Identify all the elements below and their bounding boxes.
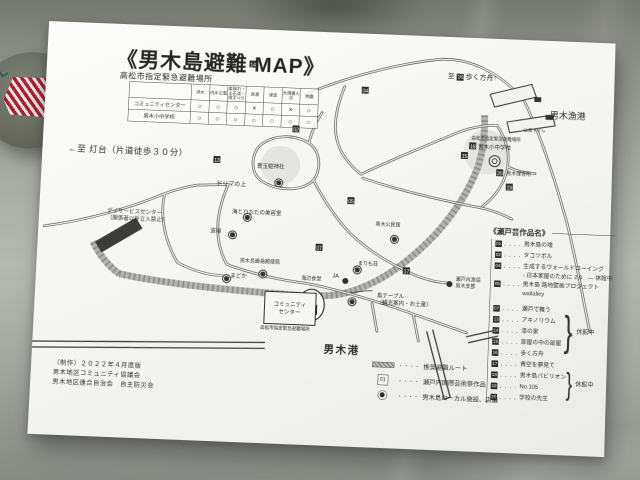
art-number-chip: 01 bbox=[495, 240, 502, 247]
leader-dots: ・・・・ bbox=[500, 339, 519, 349]
facility-dot-icon bbox=[347, 297, 356, 306]
map-key-symbol: 01 bbox=[370, 374, 395, 386]
leader-dots: ・・・・ bbox=[503, 241, 522, 251]
art-title-line: 男木島パビリオン bbox=[520, 371, 567, 382]
map-key-label: 推奨避難ルート bbox=[423, 361, 467, 372]
art-title-line: 漆の家 bbox=[521, 327, 539, 337]
art-number-chip: 07 bbox=[493, 305, 500, 312]
art-title: 部屋の中の部屋 bbox=[521, 338, 562, 349]
art-title-line: タコツボル bbox=[523, 251, 552, 261]
local-facility-icon bbox=[377, 390, 387, 400]
art-number-chip: 16 bbox=[492, 349, 499, 356]
facility-dot-icon bbox=[390, 235, 399, 244]
art-number-chip: 15 bbox=[492, 338, 499, 345]
leader-dots: ・・・・ bbox=[501, 317, 520, 327]
art-title: 学校の先生 bbox=[519, 393, 548, 403]
leader-dots: ・・・・ bbox=[503, 252, 522, 262]
art-title-line: 男木島の魂 bbox=[524, 240, 553, 250]
art-title: 歩く方舟 bbox=[520, 349, 543, 359]
art-title: No.105 bbox=[519, 382, 538, 392]
art-title-line: 学校の先生 bbox=[519, 393, 548, 403]
facility-dot-icon bbox=[446, 281, 452, 287]
map-key-label: 瀬戸内国際芸術祭作品 bbox=[423, 376, 486, 388]
leader-dots: ・・・・ bbox=[503, 263, 522, 273]
art-title-line: 青空を夢見て bbox=[520, 360, 555, 370]
art-legend-item: 05・・・・男木島 路地壁画プロジェクトwallalley bbox=[494, 279, 614, 302]
community-center-label: コミュニティ センター bbox=[273, 300, 306, 316]
evacuation-site-icon bbox=[488, 155, 500, 167]
map-key-label: 男木島ローカル施設、店舗 bbox=[422, 392, 498, 405]
leader-dots: ・・・・ bbox=[397, 392, 419, 399]
art-title: 青空を夢見て bbox=[520, 360, 555, 370]
leader-dots: ・・・・ bbox=[502, 281, 521, 291]
art-number-chip: 05 bbox=[494, 280, 501, 287]
facility-dot-icon bbox=[243, 213, 252, 222]
stone-bird-mark-icon bbox=[0, 68, 8, 78]
facility-dot-icon bbox=[353, 265, 362, 274]
leader-dots: ・・・・ bbox=[398, 362, 420, 369]
art-title: 瀬戸で舞う bbox=[522, 305, 551, 315]
art-number-chip: 04 bbox=[495, 262, 502, 269]
facility-dot-icon bbox=[258, 269, 267, 278]
brace-glyph: } bbox=[565, 366, 572, 402]
leader-dots: ・・・・ bbox=[500, 328, 519, 338]
art-title: 男木島パビリオン bbox=[520, 371, 567, 382]
leader-dots: ・・・・ bbox=[500, 350, 519, 360]
closed-status: 休館中 bbox=[576, 327, 594, 336]
photo-scene: 《男木島避難 MAP》 高松市指定緊急避難場所 洪水内水氾濫崖崩れ・土石流・地す… bbox=[0, 0, 640, 480]
facility-dot-icon bbox=[342, 278, 348, 284]
art-title: タコツボル bbox=[523, 251, 552, 261]
art-square-icon: 01 bbox=[377, 374, 388, 385]
art-title-line: 歩く方舟 bbox=[520, 349, 543, 359]
closed-brace-1: } 休館中 bbox=[561, 309, 595, 355]
art-title-line: アキノリウム bbox=[521, 316, 555, 326]
facility-dot-icon bbox=[228, 230, 237, 239]
map-key: ・・・・推奨避難ルート01・・・・瀬戸内国際芸術祭作品・・・・男木島ローカル施設… bbox=[370, 356, 522, 408]
community-center-box: コミュニティ センター bbox=[263, 291, 316, 326]
art-title-line: 瀬戸で舞う bbox=[522, 305, 551, 315]
art-title: 漆の家 bbox=[521, 327, 539, 337]
map-key-symbol bbox=[370, 390, 395, 401]
art-title-line: No.105 bbox=[519, 382, 538, 392]
map-key-symbol bbox=[371, 361, 395, 368]
art-number-chip: 13 bbox=[493, 316, 500, 323]
art-title: 男木島の魂 bbox=[524, 240, 553, 250]
route-swatch-icon bbox=[372, 361, 394, 367]
art-number-chip: 02 bbox=[495, 251, 502, 258]
art-legend-group: 01・・・・男木島の魂02・・・・タコツボル04・・・・生成するウォールドローイ… bbox=[494, 239, 615, 302]
closed-status: 休館中 bbox=[575, 380, 593, 389]
evacuation-map-paper: 《男木島避難 MAP》 高松市指定緊急避難場所 洪水内水氾濫崖崩れ・土石流・地す… bbox=[27, 21, 615, 457]
art-title: アキノリウム bbox=[521, 316, 555, 326]
leader-dots: ・・・・ bbox=[501, 306, 520, 316]
art-title: 男木島 路地壁画プロジェクトwallalley bbox=[522, 280, 599, 301]
art-number-chip: 14 bbox=[492, 327, 499, 334]
closed-brace-2: } 休館中 bbox=[563, 367, 593, 401]
art-title-line: 部屋の中の部屋 bbox=[521, 338, 562, 349]
facility-dot-icon bbox=[274, 178, 283, 187]
leader-dots: ・・・・ bbox=[398, 377, 420, 384]
brace-glyph: } bbox=[563, 307, 573, 356]
facility-dot-icon bbox=[222, 274, 231, 283]
